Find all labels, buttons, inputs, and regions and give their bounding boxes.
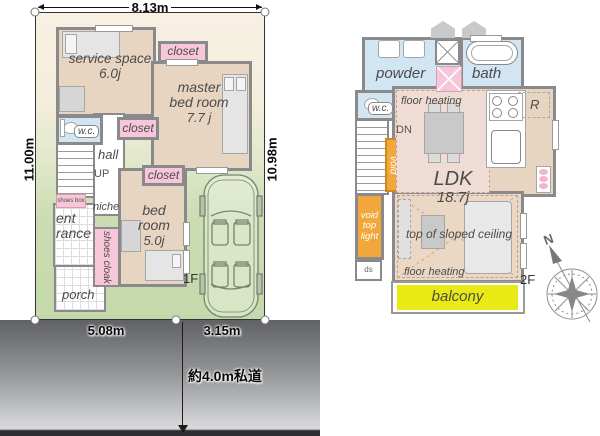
dn-label: DN	[396, 124, 412, 136]
dimension-top-value: 8.13m	[132, 0, 169, 15]
bedroom-labels: bed room 5.0j	[126, 203, 182, 248]
shelf-item	[539, 183, 548, 189]
ldk-labels: LDK 18.7j	[415, 168, 491, 207]
closet-bedroom: closet	[142, 165, 185, 186]
sink	[403, 40, 425, 58]
floor1-tag: 1F	[183, 272, 198, 286]
wc-2f-label: w.c.	[368, 102, 393, 115]
wc-1f-label-box: w.c.	[74, 121, 99, 139]
wc-1f-label: w.c.	[74, 125, 99, 138]
window	[196, 167, 228, 174]
stairs-2f	[355, 119, 389, 195]
window	[166, 59, 198, 66]
dining-table	[424, 112, 464, 154]
floor-plan-page: 8.13m 11.00m 10.98m 5.08m 3.15m 約4.0m私道 …	[0, 0, 600, 436]
chair	[447, 153, 460, 163]
sloped-ceiling-label: top of sloped ceiling	[403, 228, 515, 241]
dimension-frontage-left: 5.08m	[70, 323, 142, 338]
floor-heating-label-top: floor heating	[401, 95, 462, 107]
master-bedroom-labels: master bed room 7.7 j	[158, 80, 240, 125]
window	[520, 243, 527, 269]
toilet-tank	[60, 119, 65, 137]
closet-hall: closet	[117, 117, 159, 140]
window	[470, 35, 502, 42]
bath-label: bath	[472, 66, 501, 83]
stove-burner	[508, 108, 518, 118]
chair	[428, 153, 441, 163]
bedroom-name: bed	[142, 203, 165, 218]
stove-burner	[492, 96, 502, 106]
balcony-label: balcony	[432, 289, 484, 306]
sink	[378, 40, 400, 58]
ds-box: ds	[355, 260, 382, 281]
shoes-box-label: shoes box	[57, 198, 84, 205]
entrance-label-line2: rance	[56, 225, 91, 241]
wc-2f-label-box: w.c.	[368, 98, 393, 116]
niche-label: niche	[93, 201, 119, 213]
dimension-left-value: 11.00m	[22, 135, 37, 185]
master-bedroom-size: 7.7 j	[187, 111, 212, 125]
bathtub-inner	[471, 45, 513, 61]
hall-label: hall	[98, 148, 118, 162]
washer-pan	[436, 66, 462, 92]
stairs-1f	[56, 143, 95, 198]
ldk-name: LDK	[434, 168, 473, 190]
stove-burner	[508, 96, 518, 106]
closet-label: closet	[148, 169, 179, 182]
desk	[59, 86, 85, 112]
dimension-frontage-right: 3.15m	[186, 323, 258, 338]
void-top-light: void top light	[355, 193, 384, 260]
cabinet-fixture	[435, 39, 460, 65]
roof-vent-icon	[431, 21, 455, 38]
fridge-label: R	[530, 98, 539, 112]
ldk-size: 18.7j	[437, 190, 470, 207]
service-space-size: 6.0j	[99, 67, 121, 82]
dimension-line	[171, 7, 262, 8]
window	[95, 25, 133, 32]
shelf-item	[539, 169, 548, 175]
entrance-label: ent rance	[56, 211, 91, 242]
lot-corner-marker	[261, 8, 270, 17]
window	[552, 120, 559, 150]
service-space-labels: service space 6.0j	[66, 52, 154, 82]
lot-corner-marker	[31, 8, 40, 17]
porch-label: porch	[62, 288, 95, 302]
road-label: 約4.0m私道	[188, 366, 262, 386]
shoes-cloak-label: shoes cloak	[101, 231, 112, 284]
ds-label: ds	[364, 266, 372, 275]
entrance-label-line1: ent	[56, 210, 75, 226]
road-center-line	[182, 322, 183, 426]
master-bedroom-name: bed room	[169, 95, 228, 110]
balcony: balcony	[397, 285, 518, 310]
void-top-light-label: void top light	[358, 211, 381, 242]
lot-corner-marker	[172, 316, 181, 325]
shoes-cloak: shoes cloak	[93, 227, 120, 287]
floor2-tag: 2F	[520, 273, 535, 287]
lot-corner-marker	[31, 316, 40, 325]
powder-label: powder	[376, 66, 425, 83]
car	[197, 170, 265, 322]
window	[183, 222, 190, 246]
dimension-right-value: 10.98m	[265, 135, 280, 185]
service-space-name: service space	[69, 52, 152, 67]
kitchen-sink	[491, 130, 521, 164]
niche-shelf	[536, 166, 551, 193]
master-bedroom-name: master	[178, 80, 221, 95]
stove-burner	[492, 108, 502, 118]
bedroom-name: room	[138, 218, 170, 233]
compass-north-label: N	[542, 232, 556, 248]
lot-corner-marker	[261, 316, 270, 325]
road-arrow-icon	[178, 425, 188, 433]
north-arrow-icon	[549, 245, 562, 264]
pillow	[172, 254, 181, 268]
compass-rose: N	[538, 232, 600, 332]
floor-heating-label-bottom: floor heating	[404, 266, 465, 278]
closet-label: closet	[167, 45, 198, 58]
bedroom-size: 5.0j	[144, 234, 165, 248]
up-label: UP	[94, 168, 109, 180]
window	[520, 213, 527, 239]
dimension-line	[38, 7, 129, 8]
shelf-item	[539, 176, 548, 182]
closet-label: closet	[122, 122, 153, 135]
dimension-top: 8.13m	[35, 1, 265, 14]
road-area	[0, 320, 320, 436]
shoes-box-chip: shoes box	[56, 194, 86, 208]
